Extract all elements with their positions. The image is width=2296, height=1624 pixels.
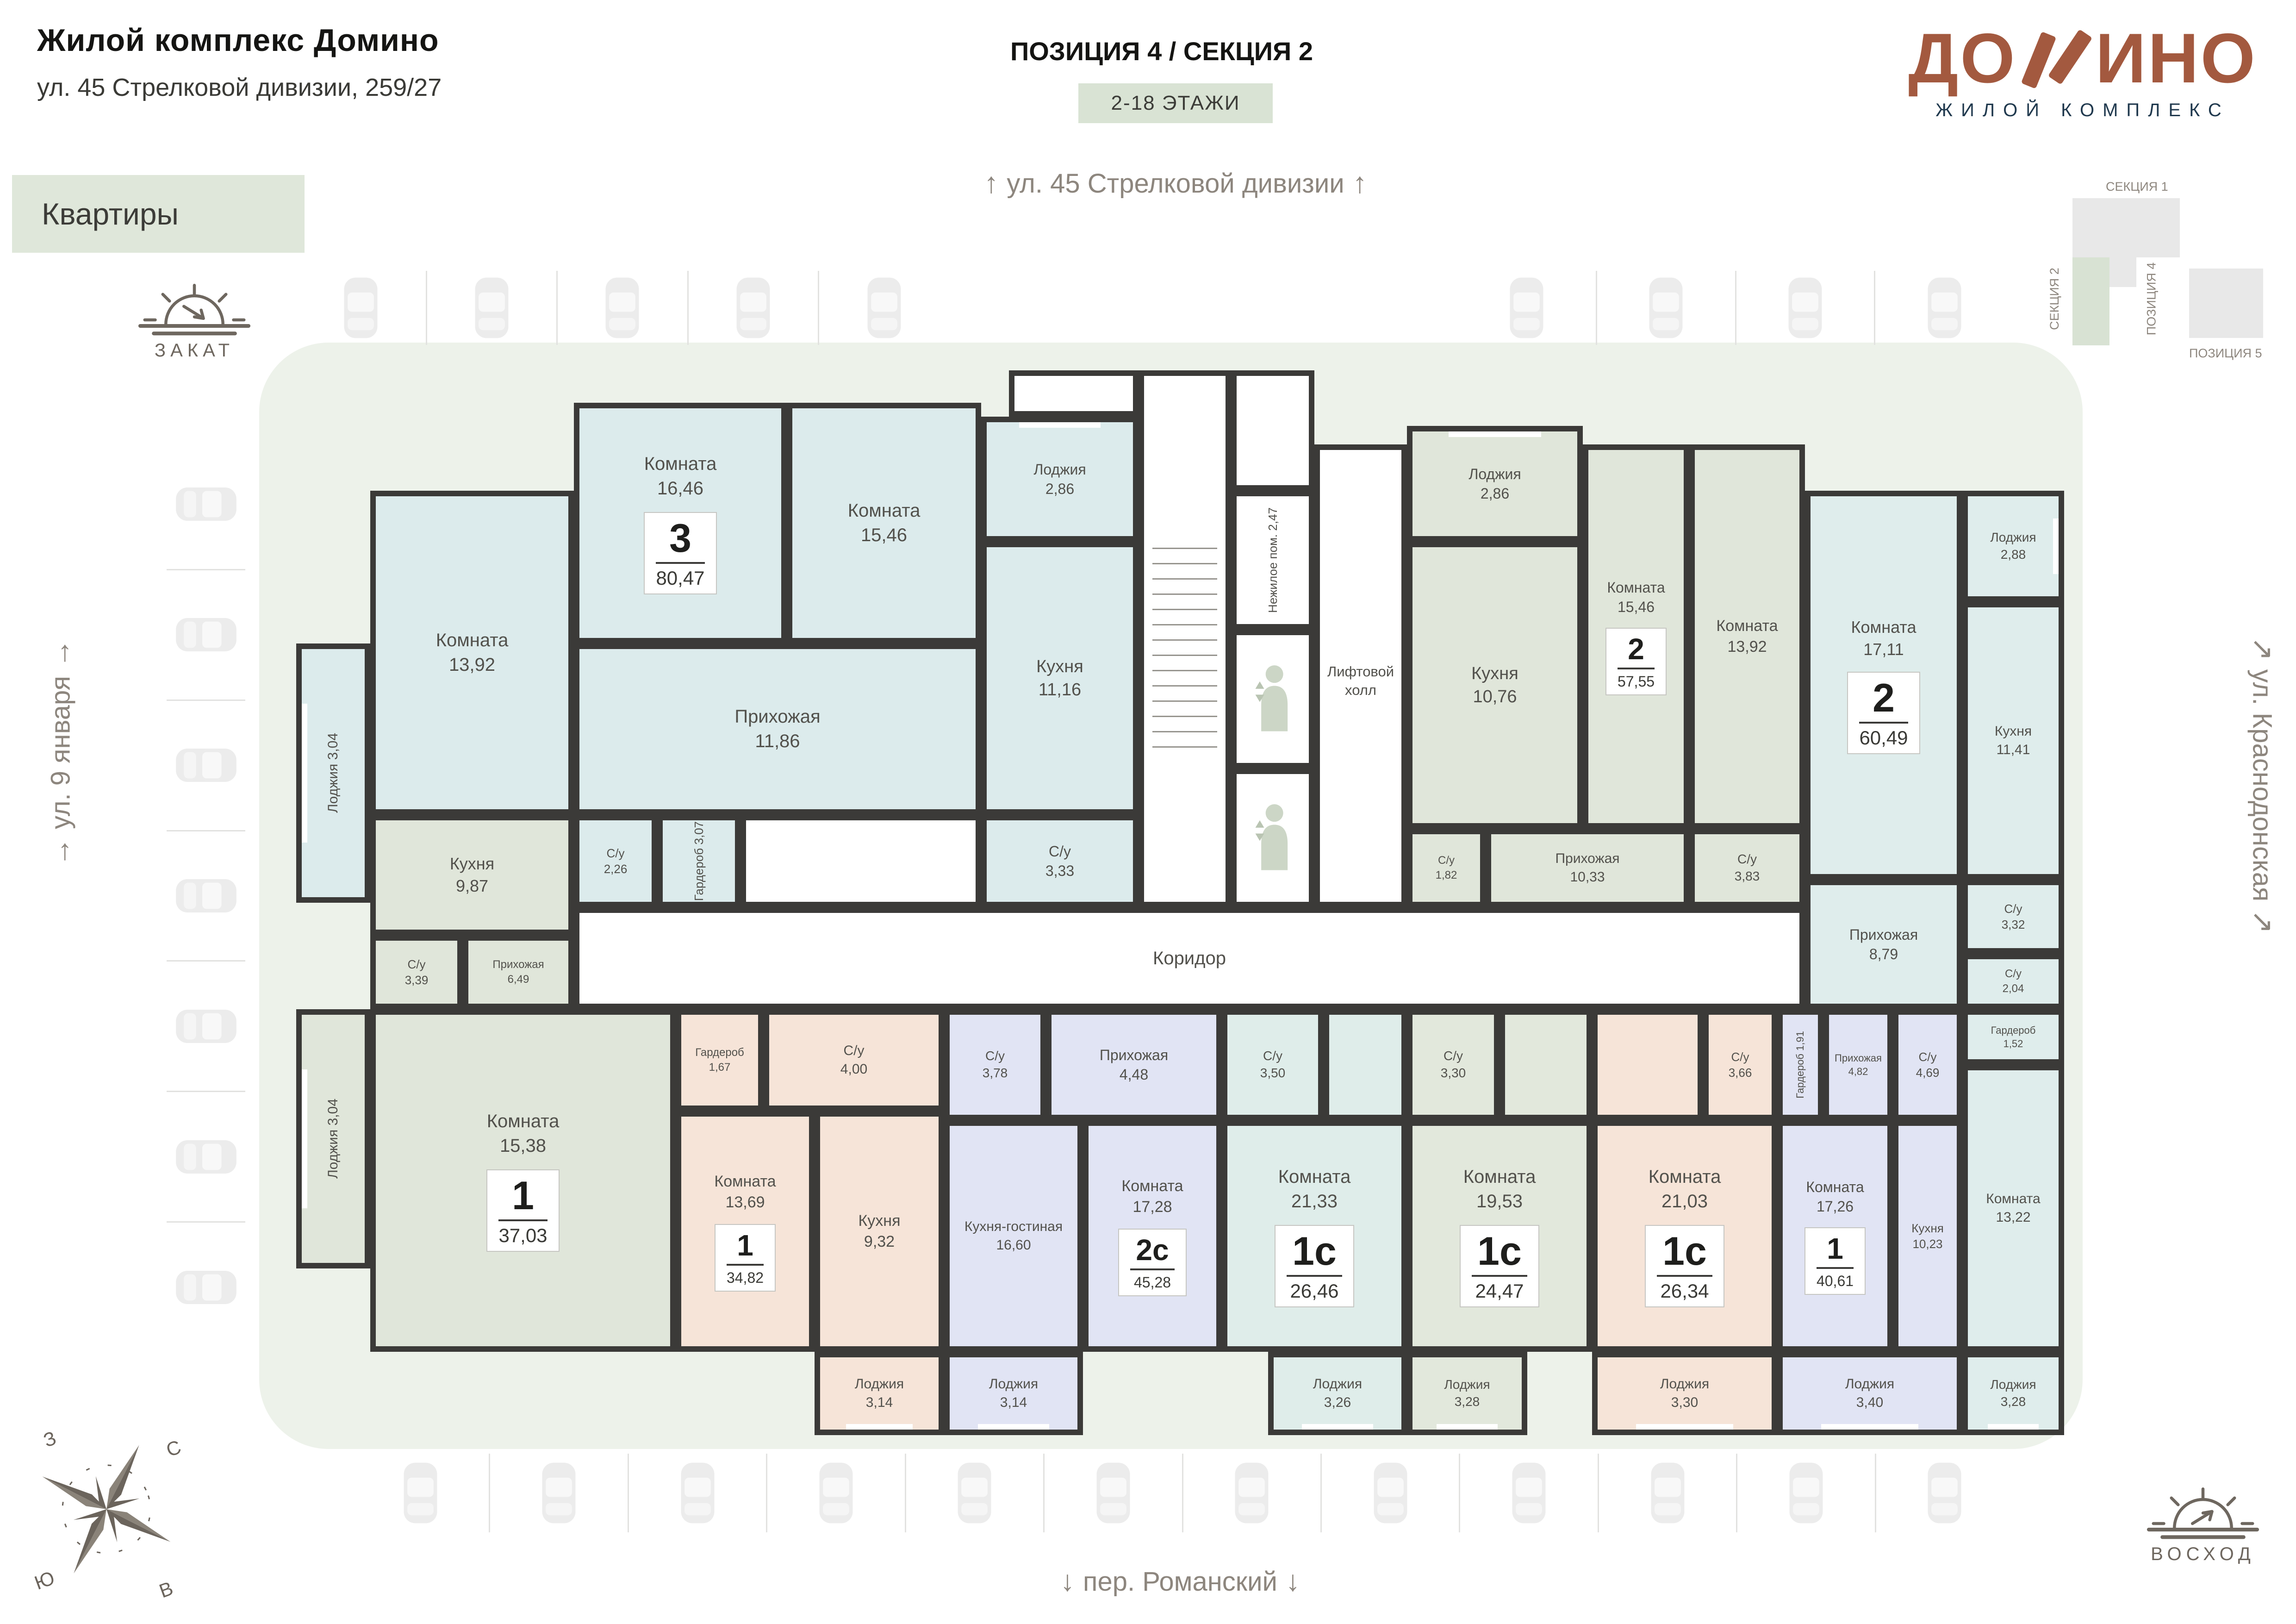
arrow-up-icon: ↑	[976, 167, 1007, 199]
room-a40_ward191[interactable]: Гардероб 1,91	[1777, 1009, 1823, 1120]
site-minimap: СЕКЦИЯ 1 СЕКЦИЯ 2 ПОЗИЦИЯ 4 ПОЗИЦИЯ 5	[2036, 176, 2286, 407]
room-name: Кухня	[450, 853, 494, 875]
room-area: 3,07	[692, 821, 706, 845]
room-c26_su366[interactable]: С/у3,66	[1703, 1009, 1777, 1120]
room-a60_hall879[interactable]: Прихожая8,79	[1805, 880, 1962, 1009]
room-name: Гардероб	[695, 1045, 744, 1060]
parking-row-top-left	[296, 271, 949, 345]
window-icon	[1988, 1424, 2039, 1430]
room-name: Лоджия	[1468, 464, 1521, 484]
room-name: С/у	[405, 956, 429, 972]
apartment-badge[interactable]: 260,49	[1847, 672, 1920, 754]
room-area: 15,38	[487, 1134, 560, 1158]
room-area: 15,46	[848, 523, 921, 548]
stairs-icon	[1152, 534, 1218, 755]
room-area: 11,16	[1036, 678, 1083, 701]
parking-space	[1183, 1454, 1322, 1532]
apartment-type: 1	[1817, 1234, 1854, 1269]
room-a37_su339[interactable]: С/у3,39	[370, 935, 463, 1009]
room-name: С/у	[1436, 853, 1457, 868]
room-area: 4,48	[1100, 1065, 1168, 1084]
apartment-badge[interactable]: 1с26,46	[1275, 1225, 1354, 1307]
room-name: Лоджия	[989, 1375, 1038, 1393]
apartment-badge[interactable]: 380,47	[644, 512, 716, 594]
room-area: 9,32	[859, 1231, 901, 1252]
room-area: 8,79	[1849, 944, 1918, 964]
room-area: 1,82	[1436, 868, 1457, 883]
car-icon	[470, 275, 514, 341]
room-name: Комната	[1649, 1165, 1721, 1189]
room-filler	[1500, 1009, 1592, 1120]
window-icon	[302, 1069, 307, 1208]
room-a60_kitchen1141[interactable]: Кухня11,41	[1962, 602, 2064, 880]
apartment-area: 26,34	[1657, 1277, 1712, 1301]
page-subtitle: ул. 45 Стрелковой дивизии, 259/27	[37, 73, 442, 102]
tab-kvartiry-label: Квартиры	[42, 196, 179, 231]
room-name: Лоджия	[1660, 1375, 1709, 1393]
window-icon	[1019, 422, 1101, 428]
room-c46_room2133[interactable]: Комната21,331с26,46	[1222, 1120, 1407, 1352]
parking-space	[167, 962, 245, 1092]
apartment-area: 34,82	[727, 1266, 764, 1285]
car-icon	[1369, 1460, 1412, 1526]
room-a3_room1392[interactable]: Комната13,92	[370, 491, 574, 815]
car-icon	[1507, 1460, 1551, 1526]
room-area: 3,66	[1729, 1065, 1752, 1081]
car-icon	[1505, 275, 1549, 341]
room-name: Лоджия	[325, 764, 341, 813]
position-title: ПОЗИЦИЯ 4 / СЕКЦИЯ 2	[865, 36, 1458, 66]
room-name: Гардероб	[1991, 1024, 2036, 1037]
room-a3_loggia304[interactable]: Лоджия 3,04	[296, 643, 370, 903]
street-label-top: ↑ул. 45 Стрелковой дивизии↑	[861, 167, 1490, 200]
room-a60_su332[interactable]: С/у3,32	[1962, 880, 2064, 954]
minimap-position5-label: ПОЗИЦИЯ 5	[2189, 346, 2262, 361]
minimap-section2-highlight[interactable]	[2072, 257, 2109, 345]
room-a3_su333[interactable]: С/у3,33	[981, 815, 1139, 907]
room-area: 13,22	[1986, 1208, 2040, 1227]
room-filler	[1324, 1009, 1407, 1120]
parking-column-left	[167, 440, 245, 1352]
car-icon	[537, 1460, 581, 1526]
parking-space	[167, 440, 245, 570]
room-area: 1,52	[1991, 1037, 2036, 1050]
window-icon	[302, 704, 307, 843]
parking-space	[767, 1454, 906, 1532]
car-icon	[731, 275, 775, 341]
room-area: 11,41	[1995, 741, 2032, 759]
room-a34_ward167[interactable]: Гардероб1,67	[676, 1009, 764, 1111]
room-name: Комната	[1607, 578, 1665, 597]
parking-space	[167, 1223, 245, 1352]
room-area: 2,26	[604, 861, 628, 877]
room-a57_su182[interactable]: С/у1,82	[1407, 829, 1486, 907]
room-a40_loggia340[interactable]: Лоджия3,40	[1777, 1352, 1962, 1435]
room-area: 4,69	[1916, 1065, 1940, 1081]
window-icon	[1821, 1424, 1919, 1430]
room-area: 16,60	[964, 1236, 1063, 1255]
parking-space	[427, 271, 558, 345]
room-name: Кухня	[1471, 662, 1518, 685]
parking-space	[1737, 1454, 1876, 1532]
room-area: 17,11	[1851, 638, 1916, 661]
parking-space	[1458, 271, 1597, 345]
room-area: 3,14	[855, 1393, 904, 1412]
street-label-bottom: ↓пер. Романский↓	[879, 1565, 1481, 1598]
room-c44_su330[interactable]: С/у3,30	[1407, 1009, 1500, 1120]
arrow-icon: ↗	[2247, 629, 2279, 669]
room-a57_kitchen1076[interactable]: Кухня10,76	[1407, 542, 1583, 829]
room-name: С/у	[983, 1048, 1008, 1065]
parking-space	[1322, 1454, 1460, 1532]
car-icon	[339, 275, 383, 341]
room-area: 15,46	[1607, 597, 1665, 617]
lift-hall-label: Лифтовой холл	[1320, 662, 1401, 700]
room-a57_loggia286[interactable]: Лоджия2,86	[1407, 426, 1583, 542]
window-icon	[1302, 1424, 1374, 1430]
minimap-position4-label: ПОЗИЦИЯ 4	[2144, 262, 2159, 336]
car-icon	[1923, 275, 1966, 341]
apartment-badge[interactable]: 2с45,28	[1118, 1229, 1186, 1296]
room-name: Прихожая	[734, 705, 820, 729]
room-area: 11,86	[734, 729, 820, 754]
room-name: Кухня	[1995, 722, 2032, 741]
car-icon	[600, 275, 644, 341]
room-area: 3,33	[1045, 861, 1074, 881]
room-area: 17,28	[1121, 1197, 1183, 1218]
room-name: С/у	[1916, 1049, 1940, 1065]
logo-word-start: ДО	[1908, 23, 2017, 94]
room-name: Комната	[1806, 1177, 1864, 1197]
room-name: Лоджия	[1845, 1375, 1894, 1393]
parking-space	[296, 271, 427, 345]
room-a37_hall649[interactable]: Прихожая6,49	[463, 935, 574, 1009]
room-name: Комната	[714, 1171, 776, 1192]
room-c44_loggia328[interactable]: Лоджия3,28	[1407, 1352, 1527, 1435]
parking-space	[490, 1454, 628, 1532]
parking-row-bottom	[352, 1454, 2013, 1532]
room-a2c_hall448[interactable]: Прихожая4,48	[1046, 1009, 1222, 1120]
room-name: Комната	[487, 1109, 560, 1134]
room-area: 6,49	[492, 972, 544, 987]
elevator-person-icon	[1251, 801, 1295, 875]
room-a2c_room1728[interactable]: Комната17,282с45,28	[1083, 1120, 1222, 1352]
apartment-badge[interactable]: 134,82	[715, 1224, 776, 1292]
sunset-label: ЗАКАТ	[116, 340, 273, 361]
room-a40_kitchen1023[interactable]: Кухня10,23	[1893, 1120, 1962, 1352]
minimap-section2-label: СЕКЦИЯ 2	[2047, 268, 2062, 330]
room-name: С/у	[1735, 851, 1760, 868]
arrow-down-icon: ↓	[1277, 1565, 1308, 1597]
room-area: 13,92	[436, 653, 509, 677]
car-icon	[173, 743, 239, 787]
apartment-type: 1	[727, 1230, 764, 1266]
apartment-type: 1	[498, 1176, 547, 1221]
room-a57_su383[interactable]: С/у3,83	[1689, 829, 1805, 907]
car-icon	[1644, 275, 1688, 341]
room-name: С/у	[604, 845, 628, 861]
parking-space	[819, 271, 949, 345]
room-name: Лоджия	[1033, 460, 1086, 479]
car-icon	[862, 275, 906, 341]
room-name: Комната	[1716, 616, 1778, 637]
street-label-right: ↗ул. Краснодонская↗	[2246, 531, 2280, 1040]
parking-row-top-right	[1458, 271, 2013, 345]
window-icon	[978, 1424, 1050, 1430]
core-filler	[1231, 370, 1314, 491]
apartment-area: 40,61	[1817, 1269, 1854, 1288]
apartment-type: 2с	[1130, 1235, 1174, 1270]
apartment-badge[interactable]: 257,55	[1605, 628, 1667, 695]
car-icon	[173, 1265, 239, 1309]
room-name: Комната	[644, 452, 717, 476]
logo-word-end: ИНО	[2096, 23, 2257, 94]
apartment-area: 60,49	[1859, 724, 1908, 748]
apartment-area: 24,47	[1472, 1277, 1527, 1301]
elevator-2	[1231, 768, 1314, 907]
window-icon	[1636, 1424, 1734, 1430]
car-icon	[173, 1135, 239, 1179]
room-a37_kitchen987[interactable]: Кухня9,87	[370, 815, 574, 935]
room-area: 2,88	[1990, 546, 2036, 563]
room-name: Лоджия	[1313, 1375, 1362, 1393]
apartment-badge[interactable]: 1с26,34	[1645, 1225, 1724, 1307]
parking-space	[1599, 1454, 1737, 1532]
room-area: 1,91	[1794, 1031, 1806, 1051]
room-name: Комната	[1121, 1176, 1183, 1197]
room-area: 3,40	[1845, 1393, 1894, 1412]
apartment-type: 2	[1618, 634, 1655, 669]
room-area: 21,33	[1278, 1189, 1351, 1214]
street-label-left: →ул. 9 января→	[44, 498, 77, 1007]
room-a34_kitchen932[interactable]: Кухня9,32	[815, 1111, 944, 1352]
floor-plan-page: Жилой комплекс Домино ул. 45 Стрелковой …	[0, 0, 2296, 1624]
room-area: 3,32	[2002, 917, 2025, 932]
room-area: 3,30	[1441, 1065, 1466, 1082]
page-title: Жилой комплекс Домино	[37, 22, 439, 58]
room-name: Комната	[848, 499, 921, 523]
logo-tagline: ЖИЛОЙ КОМПЛЕКС	[1888, 100, 2277, 121]
room-name: Прихожая	[1849, 925, 1918, 944]
room-a57_hall1033[interactable]: Прихожая10,33	[1486, 829, 1689, 907]
room-area: 3,28	[1444, 1393, 1490, 1411]
room-name: Кухня	[1911, 1220, 1944, 1236]
apartment-type: 1с	[1657, 1231, 1712, 1277]
room-area: 16,46	[644, 476, 717, 501]
parking-space	[1736, 271, 1876, 345]
room-area: 3,50	[1260, 1065, 1286, 1082]
room-name: Комната	[1463, 1165, 1536, 1189]
room-area: 2,04	[2003, 981, 2024, 996]
sunset-icon	[130, 278, 259, 340]
parking-space	[1875, 271, 2013, 345]
room-area: 13,92	[1716, 637, 1778, 657]
room-name: Прихожая	[492, 957, 544, 972]
car-icon	[173, 874, 239, 918]
room-area: 3,26	[1313, 1393, 1362, 1412]
apartment-area: 26,46	[1287, 1277, 1342, 1301]
room-area: 21,03	[1649, 1189, 1721, 1214]
room-a34_loggia314[interactable]: Лоджия3,14	[815, 1352, 944, 1435]
room-a57_room1546[interactable]: Комната15,46257,55	[1583, 444, 1689, 829]
arrow-icon: →	[44, 829, 76, 874]
room-name: Гардероб	[692, 848, 706, 901]
room-name: С/у	[1045, 842, 1074, 861]
parking-space	[689, 271, 820, 345]
room-name: Кухня	[859, 1211, 901, 1231]
room-c46_su350[interactable]: С/у3,50	[1222, 1009, 1324, 1120]
room-area: 2,86	[1033, 479, 1086, 499]
room-a40_hall482[interactable]: Прихожая4,82	[1823, 1009, 1893, 1120]
nonresidential-room: Нежилое пом. 2,47	[1231, 491, 1314, 630]
apartment-badge[interactable]: 140,61	[1804, 1227, 1866, 1295]
room-area: 10,23	[1911, 1236, 1944, 1252]
room-a57_room1392[interactable]: Комната13,92	[1689, 444, 1805, 829]
car-icon	[1646, 1460, 1690, 1526]
room-c46_loggia326[interactable]: Лоджия3,26	[1268, 1352, 1407, 1435]
car-icon	[1230, 1460, 1274, 1526]
room-a3_hall1186[interactable]: Прихожая11,86	[574, 643, 981, 815]
elevator-1	[1231, 630, 1314, 768]
corridor: Коридор	[574, 907, 1805, 1009]
room-a3_ward307[interactable]: Гардероб 3,07	[657, 815, 740, 907]
room-a60_ward152[interactable]: Гардероб1,52	[1962, 1009, 2064, 1065]
parking-space	[167, 1092, 245, 1223]
minimap-section1-label: СЕКЦИЯ 1	[2106, 180, 2168, 194]
room-a37_room1538[interactable]: Комната15,38137,03	[370, 1009, 676, 1352]
apartment-area: 45,28	[1130, 1270, 1174, 1290]
window-icon	[1449, 431, 1541, 437]
room-name: Прихожая	[1835, 1051, 1882, 1065]
room-area: 10,33	[1555, 868, 1619, 887]
room-name: Прихожая	[1555, 849, 1619, 868]
tab-kvartiry[interactable]: Квартиры	[12, 175, 305, 253]
car-icon	[173, 613, 239, 657]
room-a60_room1711[interactable]: Комната17,11260,49	[1805, 491, 1962, 880]
minimap-section1-arm	[2109, 257, 2136, 287]
arrow-up-icon: ↑	[1344, 167, 1375, 199]
parking-space	[1460, 1454, 1599, 1532]
car-icon	[676, 1460, 720, 1526]
car-icon	[1783, 275, 1827, 341]
room-a60_room1322[interactable]: Комната13,22	[1962, 1065, 2064, 1352]
room-name: Прихожая	[1100, 1045, 1168, 1065]
room-name: Лоджия	[855, 1375, 904, 1393]
room-name: С/у	[1729, 1049, 1752, 1065]
car-icon	[1923, 1460, 1966, 1526]
apartment-type: 2	[1859, 678, 1908, 724]
room-a40_su469[interactable]: С/у4,69	[1893, 1009, 1962, 1120]
apartment-type: 3	[656, 518, 704, 564]
car-icon	[173, 1004, 239, 1048]
stair-landing	[1009, 370, 1139, 417]
car-icon	[952, 1460, 996, 1526]
room-a60_loggia328[interactable]: Лоджия3,28	[1962, 1352, 2064, 1435]
room-a3_kitchen1116[interactable]: Кухня11,16	[981, 542, 1139, 815]
parking-space	[629, 1454, 767, 1532]
sunrise-label: ВОСХОД	[2124, 1544, 2282, 1565]
apartment-area: 80,47	[656, 564, 704, 588]
room-name: С/у	[1260, 1048, 1286, 1065]
room-area: 3,39	[405, 972, 429, 988]
room-area: 4,00	[840, 1060, 867, 1079]
room-a3_su226[interactable]: С/у2,26	[574, 815, 657, 907]
room-a34_su400[interactable]: С/у4,00	[764, 1009, 944, 1111]
room-a37_loggia304[interactable]: Лоджия 3,04	[296, 1009, 370, 1268]
room-area: 1,67	[695, 1060, 744, 1075]
room-area: 9,87	[450, 875, 494, 897]
apartment-type: 1с	[1287, 1231, 1342, 1277]
arrow-icon: →	[44, 631, 76, 676]
parking-space	[558, 271, 689, 345]
room-name: Лоджия	[1990, 1376, 2036, 1393]
room-area: 3,04	[325, 1099, 341, 1125]
parking-space	[1597, 271, 1736, 345]
room-name: Комната	[436, 628, 509, 653]
window-icon	[1437, 1424, 1498, 1430]
room-a2c_loggia314[interactable]: Лоджия3,14	[944, 1352, 1083, 1435]
room-c44_room1953[interactable]: Комната19,531с24,47	[1407, 1120, 1592, 1352]
window-icon	[846, 1424, 912, 1430]
car-icon	[814, 1460, 858, 1526]
sunrise-icon	[2138, 1481, 2268, 1544]
minimap-position5-building	[2189, 269, 2263, 338]
room-area: 3,83	[1735, 868, 1760, 885]
parking-space	[906, 1454, 1045, 1532]
entry-hall	[740, 815, 981, 907]
room-a3_room1646[interactable]: Комната16,46380,47	[574, 403, 787, 643]
apartment-area: 57,55	[1618, 669, 1655, 689]
room-area: 2,86	[1468, 484, 1521, 503]
room-a34_room1369[interactable]: Комната13,69134,82	[676, 1111, 815, 1352]
room-area: 3,04	[325, 733, 341, 760]
window-icon	[2053, 518, 2059, 575]
apartment-badge[interactable]: 137,03	[486, 1169, 559, 1252]
room-name: С/у	[1441, 1048, 1466, 1065]
room-a2c_su378[interactable]: С/у3,78	[944, 1009, 1046, 1120]
room-a2c_kg1660[interactable]: Кухня-гостиная16,60	[944, 1120, 1083, 1352]
room-area: 19,53	[1463, 1189, 1536, 1214]
brand-logo: ДО ИНО ЖИЛОЙ КОМПЛЕКС	[1888, 23, 2277, 121]
parking-space	[1045, 1454, 1183, 1532]
room-name: Комната	[1986, 1190, 2040, 1208]
domino-tiles-icon	[2017, 24, 2096, 94]
room-a3_room1546[interactable]: Комната15,46	[787, 403, 981, 643]
car-icon	[1091, 1460, 1135, 1526]
parking-space	[352, 1454, 490, 1532]
parking-space	[167, 831, 245, 962]
room-name: Кухня-гостиная	[964, 1218, 1063, 1236]
compass-east: В	[156, 1577, 176, 1603]
room-area: 3,14	[989, 1393, 1038, 1412]
parking-space	[1876, 1454, 2013, 1532]
minimap-section1-building	[2072, 198, 2180, 257]
stairwell	[1139, 370, 1231, 907]
car-icon	[1784, 1460, 1828, 1526]
room-c26_loggia330[interactable]: Лоджия3,30	[1592, 1352, 1777, 1435]
room-filler	[1592, 1009, 1703, 1120]
apartment-badge[interactable]: 1с24,47	[1460, 1225, 1539, 1307]
room-c26_room2103[interactable]: Комната21,031с26,34	[1592, 1120, 1777, 1352]
room-a40_room1726[interactable]: Комната17,26140,61	[1777, 1120, 1893, 1352]
room-a60_su204[interactable]: С/у2,04	[1962, 954, 2064, 1009]
room-area: 3,28	[1990, 1393, 2036, 1411]
room-area: 10,76	[1471, 685, 1518, 708]
room-a3_loggia286[interactable]: Лоджия2,86	[981, 417, 1139, 542]
room-a60_loggia288[interactable]: Лоджия2,88	[1962, 491, 2064, 602]
room-name: Комната	[1851, 616, 1916, 638]
floors-badge: 2-18 ЭТАЖИ	[1078, 83, 1273, 123]
